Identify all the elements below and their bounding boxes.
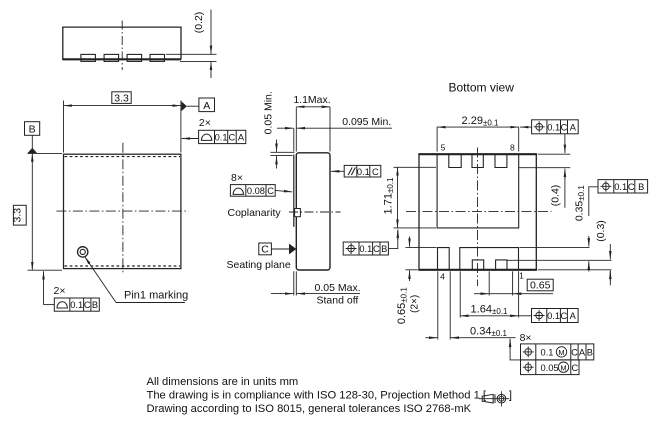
svg-text:B: B [92,300,98,310]
svg-text:1: 1 [519,271,524,281]
svg-text:Drawing according to ISO 8015,: Drawing according to ISO 8015, general t… [147,403,472,415]
svg-text:C: C [373,244,380,254]
svg-text:B: B [29,124,36,136]
svg-text:C: C [229,133,236,143]
svg-text:0.1: 0.1 [614,182,627,192]
svg-text:0.1: 0.1 [541,348,554,358]
svg-text:B: B [587,348,593,358]
svg-text:Seating plane: Seating plane [227,259,291,271]
svg-text:0.05 Min.: 0.05 Min. [263,91,275,134]
svg-text:0.08: 0.08 [247,186,265,196]
svg-text:A: A [238,133,245,143]
svg-text:(0.4): (0.4) [550,185,562,207]
svg-text:Stand off: Stand off [317,295,359,307]
svg-text:The drawing is in compliance w: The drawing is in compliance with ISO 12… [147,390,487,402]
svg-text:2×: 2× [199,117,211,129]
svg-text:Bottom view: Bottom view [449,81,515,95]
svg-text:0.05: 0.05 [540,363,558,373]
svg-text:All dimensions are in units mm: All dimensions are in units mm [147,376,299,388]
svg-text:A: A [579,348,586,358]
svg-text:B: B [638,182,644,192]
svg-text:2×: 2× [54,285,66,297]
svg-text:(2×): (2×) [409,295,420,313]
svg-text:Coplanarity: Coplanarity [228,207,282,219]
svg-text:1.1Max.: 1.1Max. [293,94,330,106]
svg-text:C: C [561,122,568,132]
svg-text:0.65: 0.65 [530,280,551,292]
svg-text:]: ] [509,390,512,402]
svg-text:0.1: 0.1 [547,122,560,132]
svg-text:C: C [372,167,379,177]
svg-text:M: M [558,348,564,357]
svg-text:4: 4 [440,272,445,282]
svg-text:(0.2): (0.2) [193,12,205,34]
svg-text:C: C [561,311,568,321]
svg-text:0.1: 0.1 [215,133,228,143]
svg-text:C: C [571,348,578,358]
svg-text:0.1: 0.1 [357,167,370,177]
svg-text:C: C [628,182,635,192]
svg-text:0.1: 0.1 [547,311,560,321]
svg-text:A: A [570,122,577,132]
svg-text:0.1: 0.1 [359,244,372,254]
svg-text:C: C [572,363,579,373]
svg-text:5: 5 [441,143,446,153]
svg-text:M: M [560,364,566,373]
svg-text:C: C [261,243,269,255]
svg-text:B: B [381,244,387,254]
svg-text:C: C [84,300,91,310]
svg-text:0.095 Min.: 0.095 Min. [342,116,391,128]
svg-text:A: A [203,100,210,112]
svg-text:3.3: 3.3 [114,92,129,104]
svg-text:Pin1 marking: Pin1 marking [124,290,188,302]
svg-text:8: 8 [510,143,515,153]
svg-text:3.3: 3.3 [12,208,24,223]
svg-text:8×: 8× [520,332,532,344]
svg-text:C: C [267,186,274,196]
svg-text:8×: 8× [231,172,243,184]
svg-text:A: A [570,311,577,321]
svg-text:0.05 Max.: 0.05 Max. [315,282,361,294]
svg-text:0.1: 0.1 [70,300,83,310]
svg-text:(0.3): (0.3) [595,220,607,242]
